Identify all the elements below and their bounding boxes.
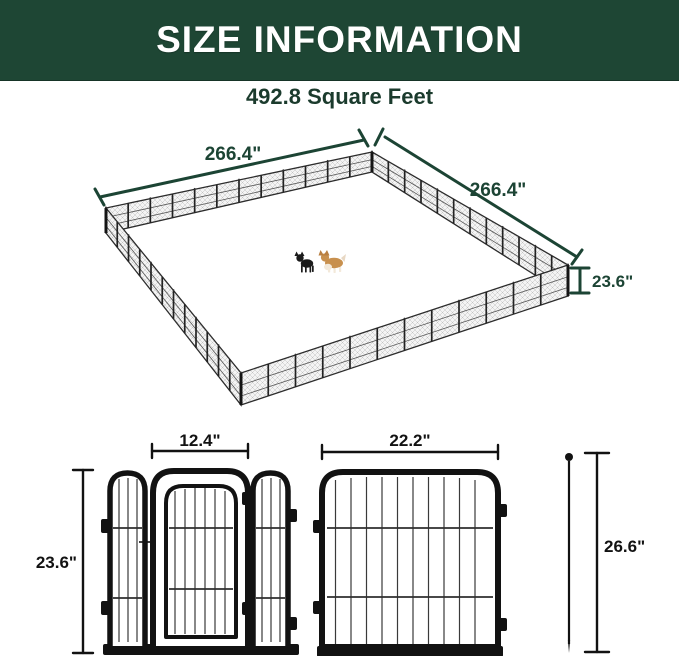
ground-stake-icon [565, 453, 573, 653]
dimension-width-right: 266.4" [375, 129, 582, 264]
dimension-enclosure-height: 23.6" [571, 268, 633, 293]
door-width-label: 12.4" [179, 431, 220, 450]
dimension-stake-height: 26.6" [585, 453, 645, 652]
dimension-panel-width: 22.2" [322, 431, 498, 459]
dimension-door-width: 12.4" [152, 431, 248, 458]
panel-width-label: 22.2" [389, 431, 430, 450]
header-banner: SIZE INFORMATION [0, 0, 679, 81]
stake-height-label: 26.6" [604, 537, 645, 556]
width-right-label: 266.4" [470, 180, 527, 201]
fence-panel-diagram [313, 472, 507, 656]
dimension-panel-height: 23.6" [36, 470, 93, 653]
width-left-label: 266.4" [205, 144, 262, 165]
area-subtitle: 492.8 Square Feet [0, 82, 679, 112]
door-panel-diagram [101, 471, 299, 655]
corgi-dog-icon [319, 250, 347, 273]
enclosure-height-label: 23.6" [592, 272, 633, 291]
black-dog-icon [295, 252, 314, 273]
page-title: SIZE INFORMATION [156, 19, 523, 61]
panel-height-label: 23.6" [36, 553, 77, 572]
size-information-page: SIZE INFORMATION 492.8 Square Feet [0, 0, 679, 656]
